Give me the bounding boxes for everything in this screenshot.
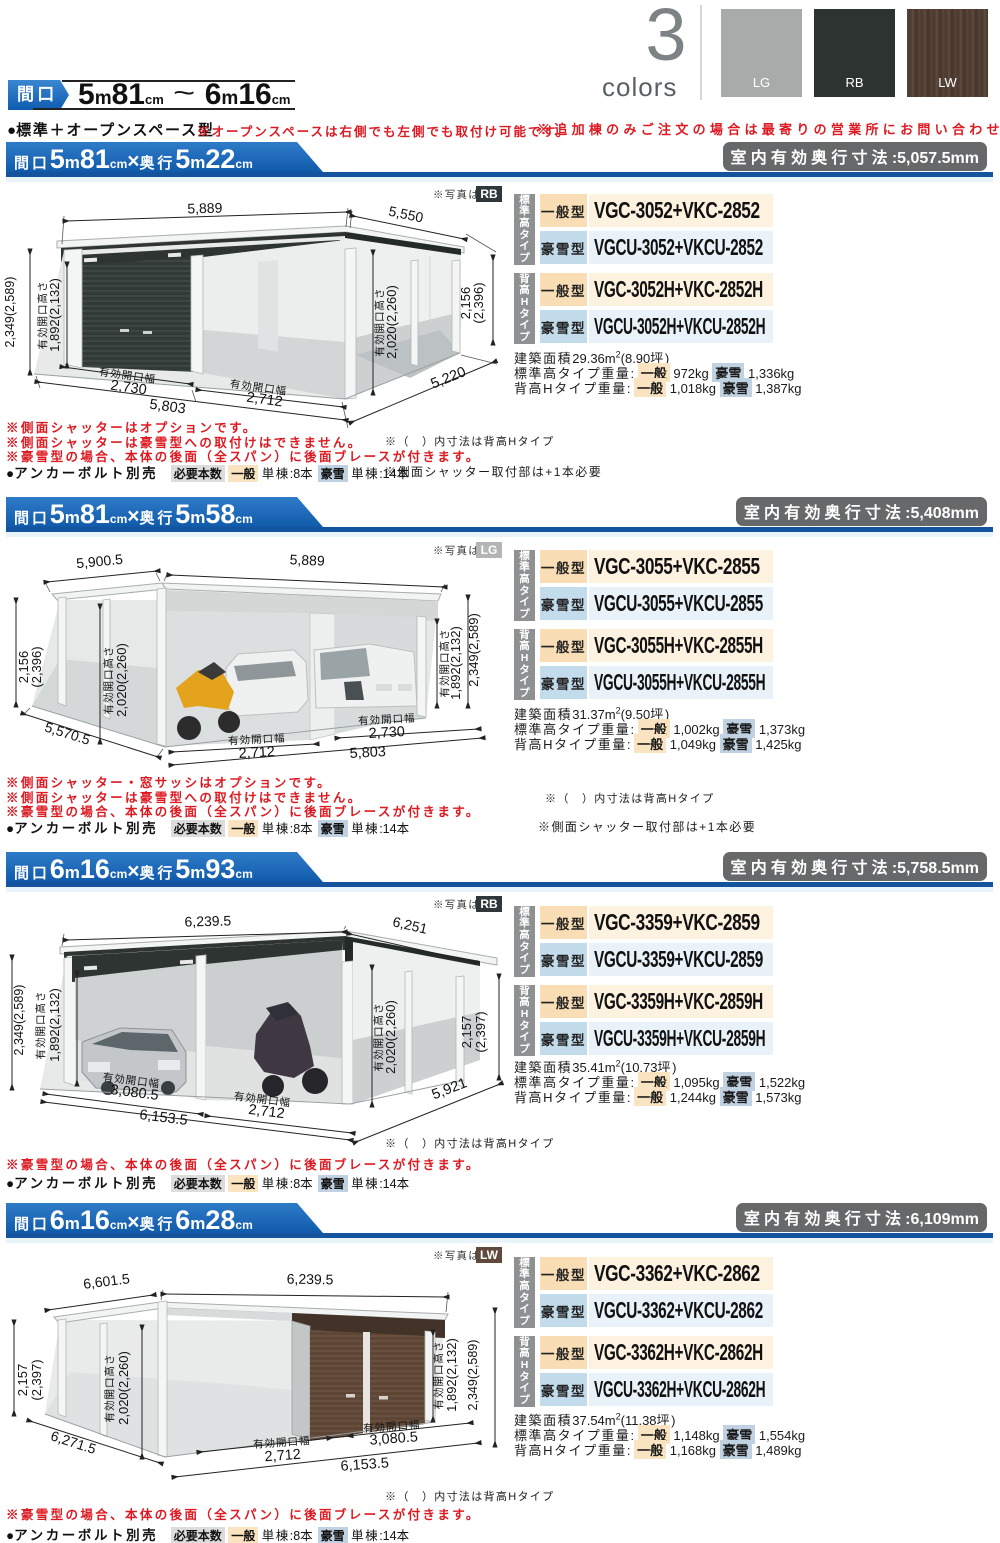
svg-text:5,803: 5,803: [349, 744, 386, 762]
svg-text:1,892(2,132): 1,892(2,132): [47, 988, 62, 1062]
svg-text:(2,397): (2,397): [29, 1359, 44, 1400]
svg-text:5,889: 5,889: [187, 199, 223, 216]
svg-text:2,712: 2,712: [238, 744, 275, 762]
svg-text:2,730: 2,730: [368, 724, 405, 742]
svg-text:2,349(2,589): 2,349(2,589): [466, 613, 481, 687]
svg-text:2,020(2,260): 2,020(2,260): [384, 285, 399, 359]
svg-text:5,220: 5,220: [429, 364, 469, 392]
svg-text:(2,397): (2,397): [473, 1011, 488, 1052]
svg-text:5,889: 5,889: [289, 551, 325, 569]
svg-text:1,892(2,132): 1,892(2,132): [444, 1338, 459, 1412]
svg-text:2,349(2,589): 2,349(2,589): [466, 1340, 480, 1411]
svg-text:5,570.5: 5,570.5: [43, 719, 93, 748]
svg-text:6,251: 6,251: [391, 913, 429, 937]
svg-text:6,271.5: 6,271.5: [49, 1427, 99, 1457]
svg-text:6,601.5: 6,601.5: [82, 1270, 131, 1292]
svg-text:1,892(2,132): 1,892(2,132): [448, 626, 463, 700]
svg-text:2,157: 2,157: [459, 1016, 474, 1049]
svg-text:1,892(2,132): 1,892(2,132): [47, 278, 62, 352]
svg-text:2,712: 2,712: [247, 1102, 285, 1122]
svg-text:(2,396): (2,396): [471, 282, 486, 323]
svg-text:3,080.5: 3,080.5: [369, 1429, 418, 1448]
svg-text:有効開口高さ: 有効開口高さ: [34, 991, 47, 1060]
svg-text:5,900.5: 5,900.5: [76, 551, 124, 571]
svg-text:5,550: 5,550: [387, 203, 425, 226]
svg-text:2,020(2,260): 2,020(2,260): [114, 643, 129, 717]
svg-text:有効開口高さ: 有効開口高さ: [103, 1354, 116, 1423]
svg-text:2,349(2,589): 2,349(2,589): [12, 985, 26, 1056]
svg-text:2,020(2,260): 2,020(2,260): [383, 1000, 398, 1074]
svg-text:(2,396): (2,396): [29, 646, 44, 687]
svg-text:2,349(2,589): 2,349(2,589): [3, 277, 17, 348]
svg-text:2,712: 2,712: [264, 1447, 301, 1465]
svg-text:6,239.5: 6,239.5: [184, 912, 231, 929]
svg-text:6,239.5: 6,239.5: [287, 1271, 334, 1288]
svg-text:2,157: 2,157: [15, 1364, 30, 1397]
svg-text:6,153.5: 6,153.5: [138, 1107, 188, 1129]
svg-text:2,020(2,260): 2,020(2,260): [116, 1351, 131, 1425]
svg-text:6,153.5: 6,153.5: [340, 1455, 389, 1474]
